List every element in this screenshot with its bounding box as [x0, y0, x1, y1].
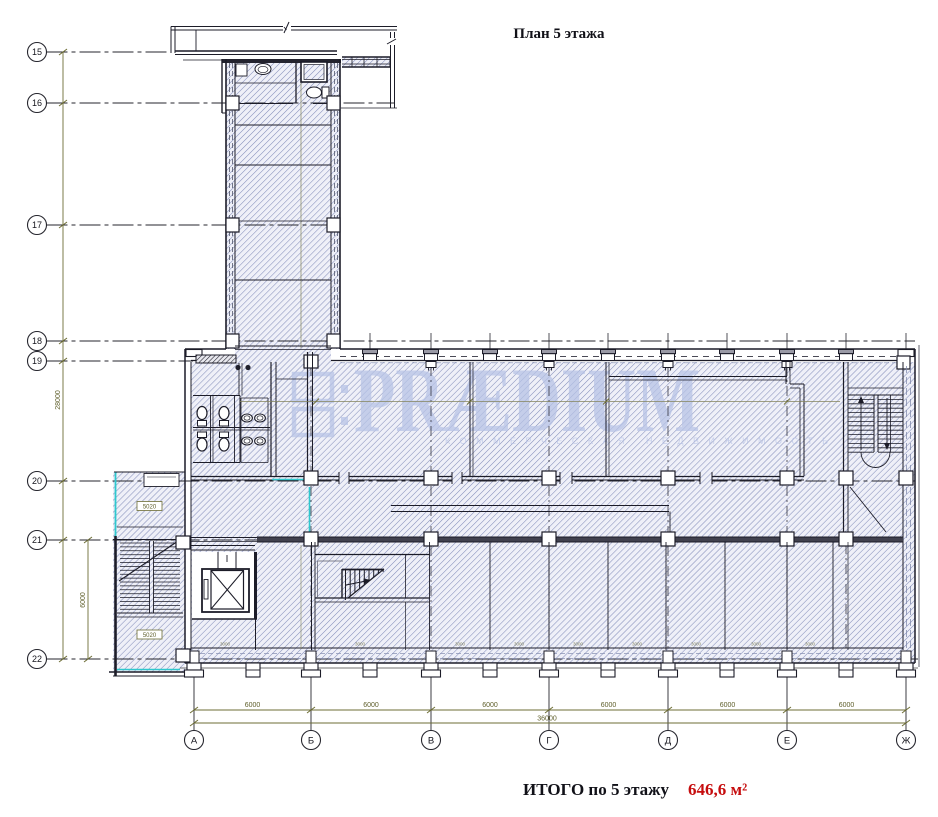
svg-text:Г: Г	[546, 736, 551, 747]
svg-text:3000: 3000	[632, 642, 643, 647]
svg-text:Е: Е	[784, 736, 790, 747]
svg-text:3000: 3000	[514, 642, 525, 647]
svg-text:КОММЕРЧЕСКАЯ НЕДВИЖИМОСТЬ: КОММЕРЧЕСКАЯ НЕДВИЖИМОСТЬ	[445, 436, 835, 446]
svg-text:3000: 3000	[691, 642, 702, 647]
svg-text:3000: 3000	[455, 642, 466, 647]
svg-text:Ж: Ж	[902, 736, 911, 747]
svg-text:6000: 6000	[720, 702, 736, 709]
svg-text:19: 19	[32, 356, 42, 366]
svg-text:3000: 3000	[573, 642, 584, 647]
svg-text:3000: 3000	[220, 642, 231, 647]
svg-text:6000: 6000	[245, 702, 261, 709]
svg-text:5020: 5020	[143, 633, 157, 639]
svg-text:6000: 6000	[80, 592, 87, 608]
svg-text:6000: 6000	[839, 702, 855, 709]
svg-text:ИТОГО по 5 этажу: ИТОГО по 5 этажу	[523, 780, 669, 799]
svg-text:План 5 этажа: План 5 этажа	[513, 26, 605, 42]
svg-text:28000: 28000	[55, 390, 62, 410]
svg-text:21: 21	[32, 535, 42, 545]
svg-text:Д: Д	[665, 736, 672, 747]
svg-text:6000: 6000	[363, 702, 379, 709]
svg-text:16: 16	[32, 98, 42, 108]
svg-text:Б: Б	[308, 736, 314, 747]
svg-text:А: А	[191, 736, 198, 747]
svg-text:6000: 6000	[601, 702, 617, 709]
svg-text:36000: 36000	[537, 716, 557, 723]
svg-text:5020: 5020	[143, 505, 157, 511]
svg-text:18: 18	[32, 336, 42, 346]
svg-text:6000: 6000	[482, 702, 498, 709]
svg-text:3000: 3000	[355, 642, 366, 647]
svg-text:3000: 3000	[805, 642, 816, 647]
svg-text:17: 17	[32, 220, 42, 230]
svg-text:В: В	[428, 736, 434, 747]
svg-text:22: 22	[32, 654, 42, 664]
svg-text:15: 15	[32, 47, 42, 57]
svg-text:3000: 3000	[751, 642, 762, 647]
svg-text:646,6 м²: 646,6 м²	[688, 780, 747, 799]
svg-text:20: 20	[32, 476, 42, 486]
